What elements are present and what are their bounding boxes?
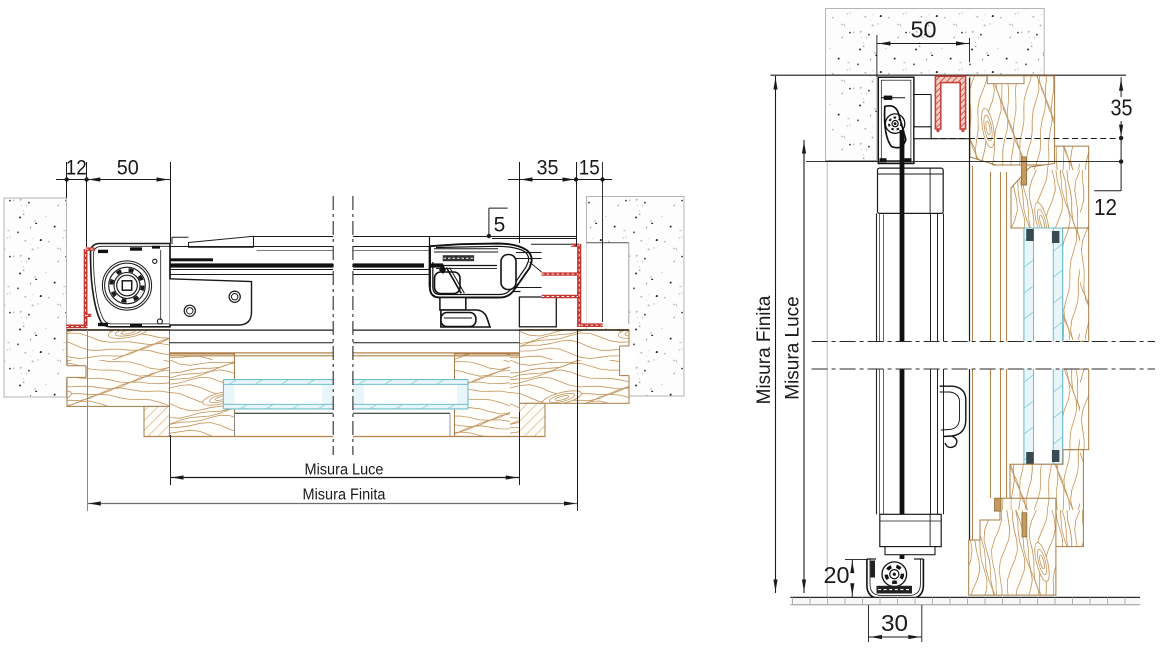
svg-text:35: 35 bbox=[1111, 95, 1133, 121]
svg-text:Misura Finita: Misura Finita bbox=[303, 487, 386, 504]
svg-text:12: 12 bbox=[1094, 194, 1117, 220]
svg-text:35: 35 bbox=[537, 157, 559, 180]
svg-text:Misura Luce: Misura Luce bbox=[783, 296, 804, 400]
svg-text:50: 50 bbox=[911, 17, 937, 43]
svg-text:30: 30 bbox=[881, 610, 908, 636]
svg-text:20: 20 bbox=[824, 562, 850, 588]
svg-text:5: 5 bbox=[494, 214, 506, 237]
svg-text:15: 15 bbox=[579, 157, 600, 180]
svg-text:Misura Luce: Misura Luce bbox=[305, 462, 384, 479]
svg-text:Misura Finita: Misura Finita bbox=[754, 295, 775, 404]
svg-text:12: 12 bbox=[66, 157, 87, 180]
svg-text:50: 50 bbox=[117, 157, 139, 180]
